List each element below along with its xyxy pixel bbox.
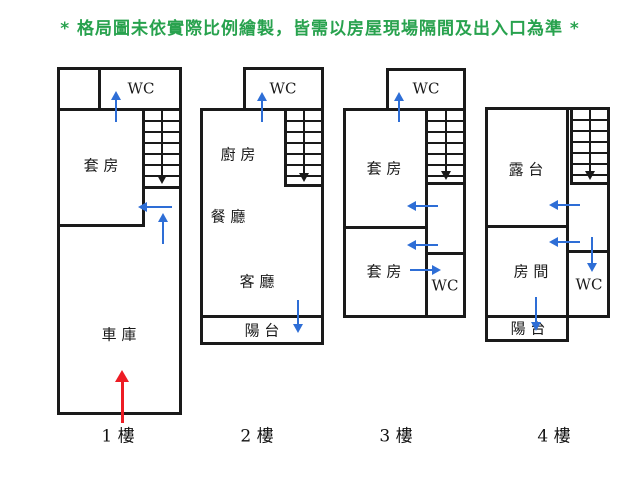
room-label-suite: 套 房 [367,265,402,280]
stairs [284,108,324,187]
floor-label-3: 3 樓 [379,429,412,446]
wall [98,67,101,111]
stairs [425,108,466,185]
room-label-bedroom: 房 間 [514,265,549,280]
room-label-dining: 餐 廳 [211,210,246,225]
door-arrow-up-icon [111,91,121,122]
door-arrow-left-icon [549,237,580,247]
room-label-kitchen: 廚 房 [221,148,256,163]
door-arrow-left-icon [549,200,580,210]
floor-label-4: 4 樓 [537,429,570,446]
door-arrow-up-icon [158,213,168,244]
door-arrow-left-icon [407,201,438,211]
room-label-garage: 車 庫 [102,328,137,343]
door-arrow-down-icon [587,237,597,272]
door-arrow-up-icon [257,92,267,122]
room-label-wc: WC [432,279,459,294]
room-label-wc: WC [128,82,155,97]
door-arrow-left-icon [407,240,438,250]
room-label-balcony: 陽 台 [245,324,280,339]
wall [57,224,145,227]
room-label-wc: WC [413,82,440,97]
room-label-living: 客 廳 [240,275,275,290]
room-label-suite: 套 房 [84,159,119,174]
main-entrance-arrow-icon [115,370,129,423]
room-label-terrace: 露 台 [509,163,544,178]
floor-label-1: 1 樓 [101,429,134,446]
wall [425,252,466,255]
stairs [570,107,610,185]
door-arrow-down-icon [531,297,541,331]
wall [343,226,428,229]
door-arrow-up-icon [394,92,404,122]
wall [485,225,569,228]
door-arrow-left-icon [138,202,172,212]
room-label-wc: WC [576,278,603,293]
door-arrow-down-icon [293,300,303,333]
room-label-wc: WC [270,82,297,97]
wall [566,107,569,318]
floorplan-page: * 格局圖未依實際比例繪製，皆需以房屋現場隔間及出入口為準 * WC 套 房 車… [0,0,640,480]
stairs [142,108,182,189]
floor-label-2: 2 樓 [240,429,273,446]
room-label-suite: 套 房 [367,162,402,177]
disclaimer-title: * 格局圖未依實際比例繪製，皆需以房屋現場隔間及出入口為準 * [0,21,640,38]
door-arrow-right-icon [410,265,441,275]
